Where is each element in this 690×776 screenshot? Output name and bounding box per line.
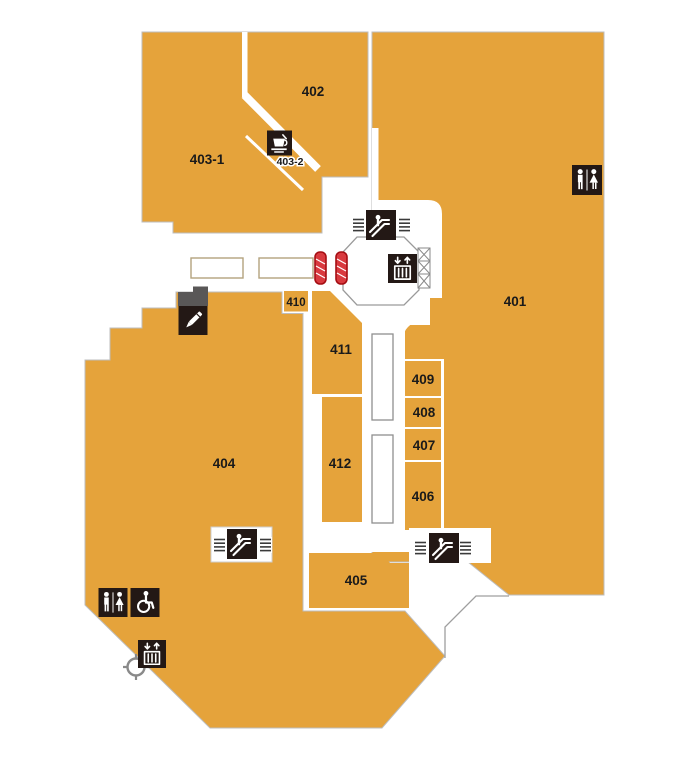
escalator-icon [409,528,491,563]
elevator-icon [138,640,166,668]
stairs-marker [336,252,347,284]
pen-icon [179,306,208,335]
floor-map-page: 401 402 403-1 403-2 404 405 406 407 408 … [0,0,690,776]
kiosk [191,258,243,278]
kiosk [372,334,393,420]
zone-label-408: 408 [413,405,436,420]
zone-403-1 [142,32,368,233]
zone-label-405: 405 [345,573,368,588]
restroom-icon [572,165,602,195]
kiosk [259,258,313,278]
stairs-marker [315,252,326,284]
service-step-shape [178,287,208,307]
accessible-restroom-icon [131,588,160,617]
zone-label-403-2: 403-2 [277,156,304,168]
zone-label-404: 404 [213,456,236,471]
zone-label-407: 407 [413,438,436,453]
cafe-icon [267,131,292,156]
elevator-shaft-hatch [418,248,430,288]
zone-label-412: 412 [329,456,352,471]
zone-label-403-1: 403-1 [190,152,225,167]
floor-map: 401 402 403-1 403-2 404 405 406 407 408 … [0,0,690,776]
escalator-icon [211,527,272,562]
corridor-402-divider [242,32,248,97]
building-outline-bay [445,596,509,658]
restroom-icon [99,588,128,617]
corridor-top [372,128,379,202]
kiosk [372,435,393,523]
zone-label-410: 410 [286,297,305,309]
zone-label-402: 402 [302,84,325,99]
zone-label-409: 409 [412,372,435,387]
zone-label-406: 406 [412,489,435,504]
zone-label-401: 401 [504,294,527,309]
elevator-icon [388,254,417,283]
zone-label-411: 411 [330,342,352,357]
